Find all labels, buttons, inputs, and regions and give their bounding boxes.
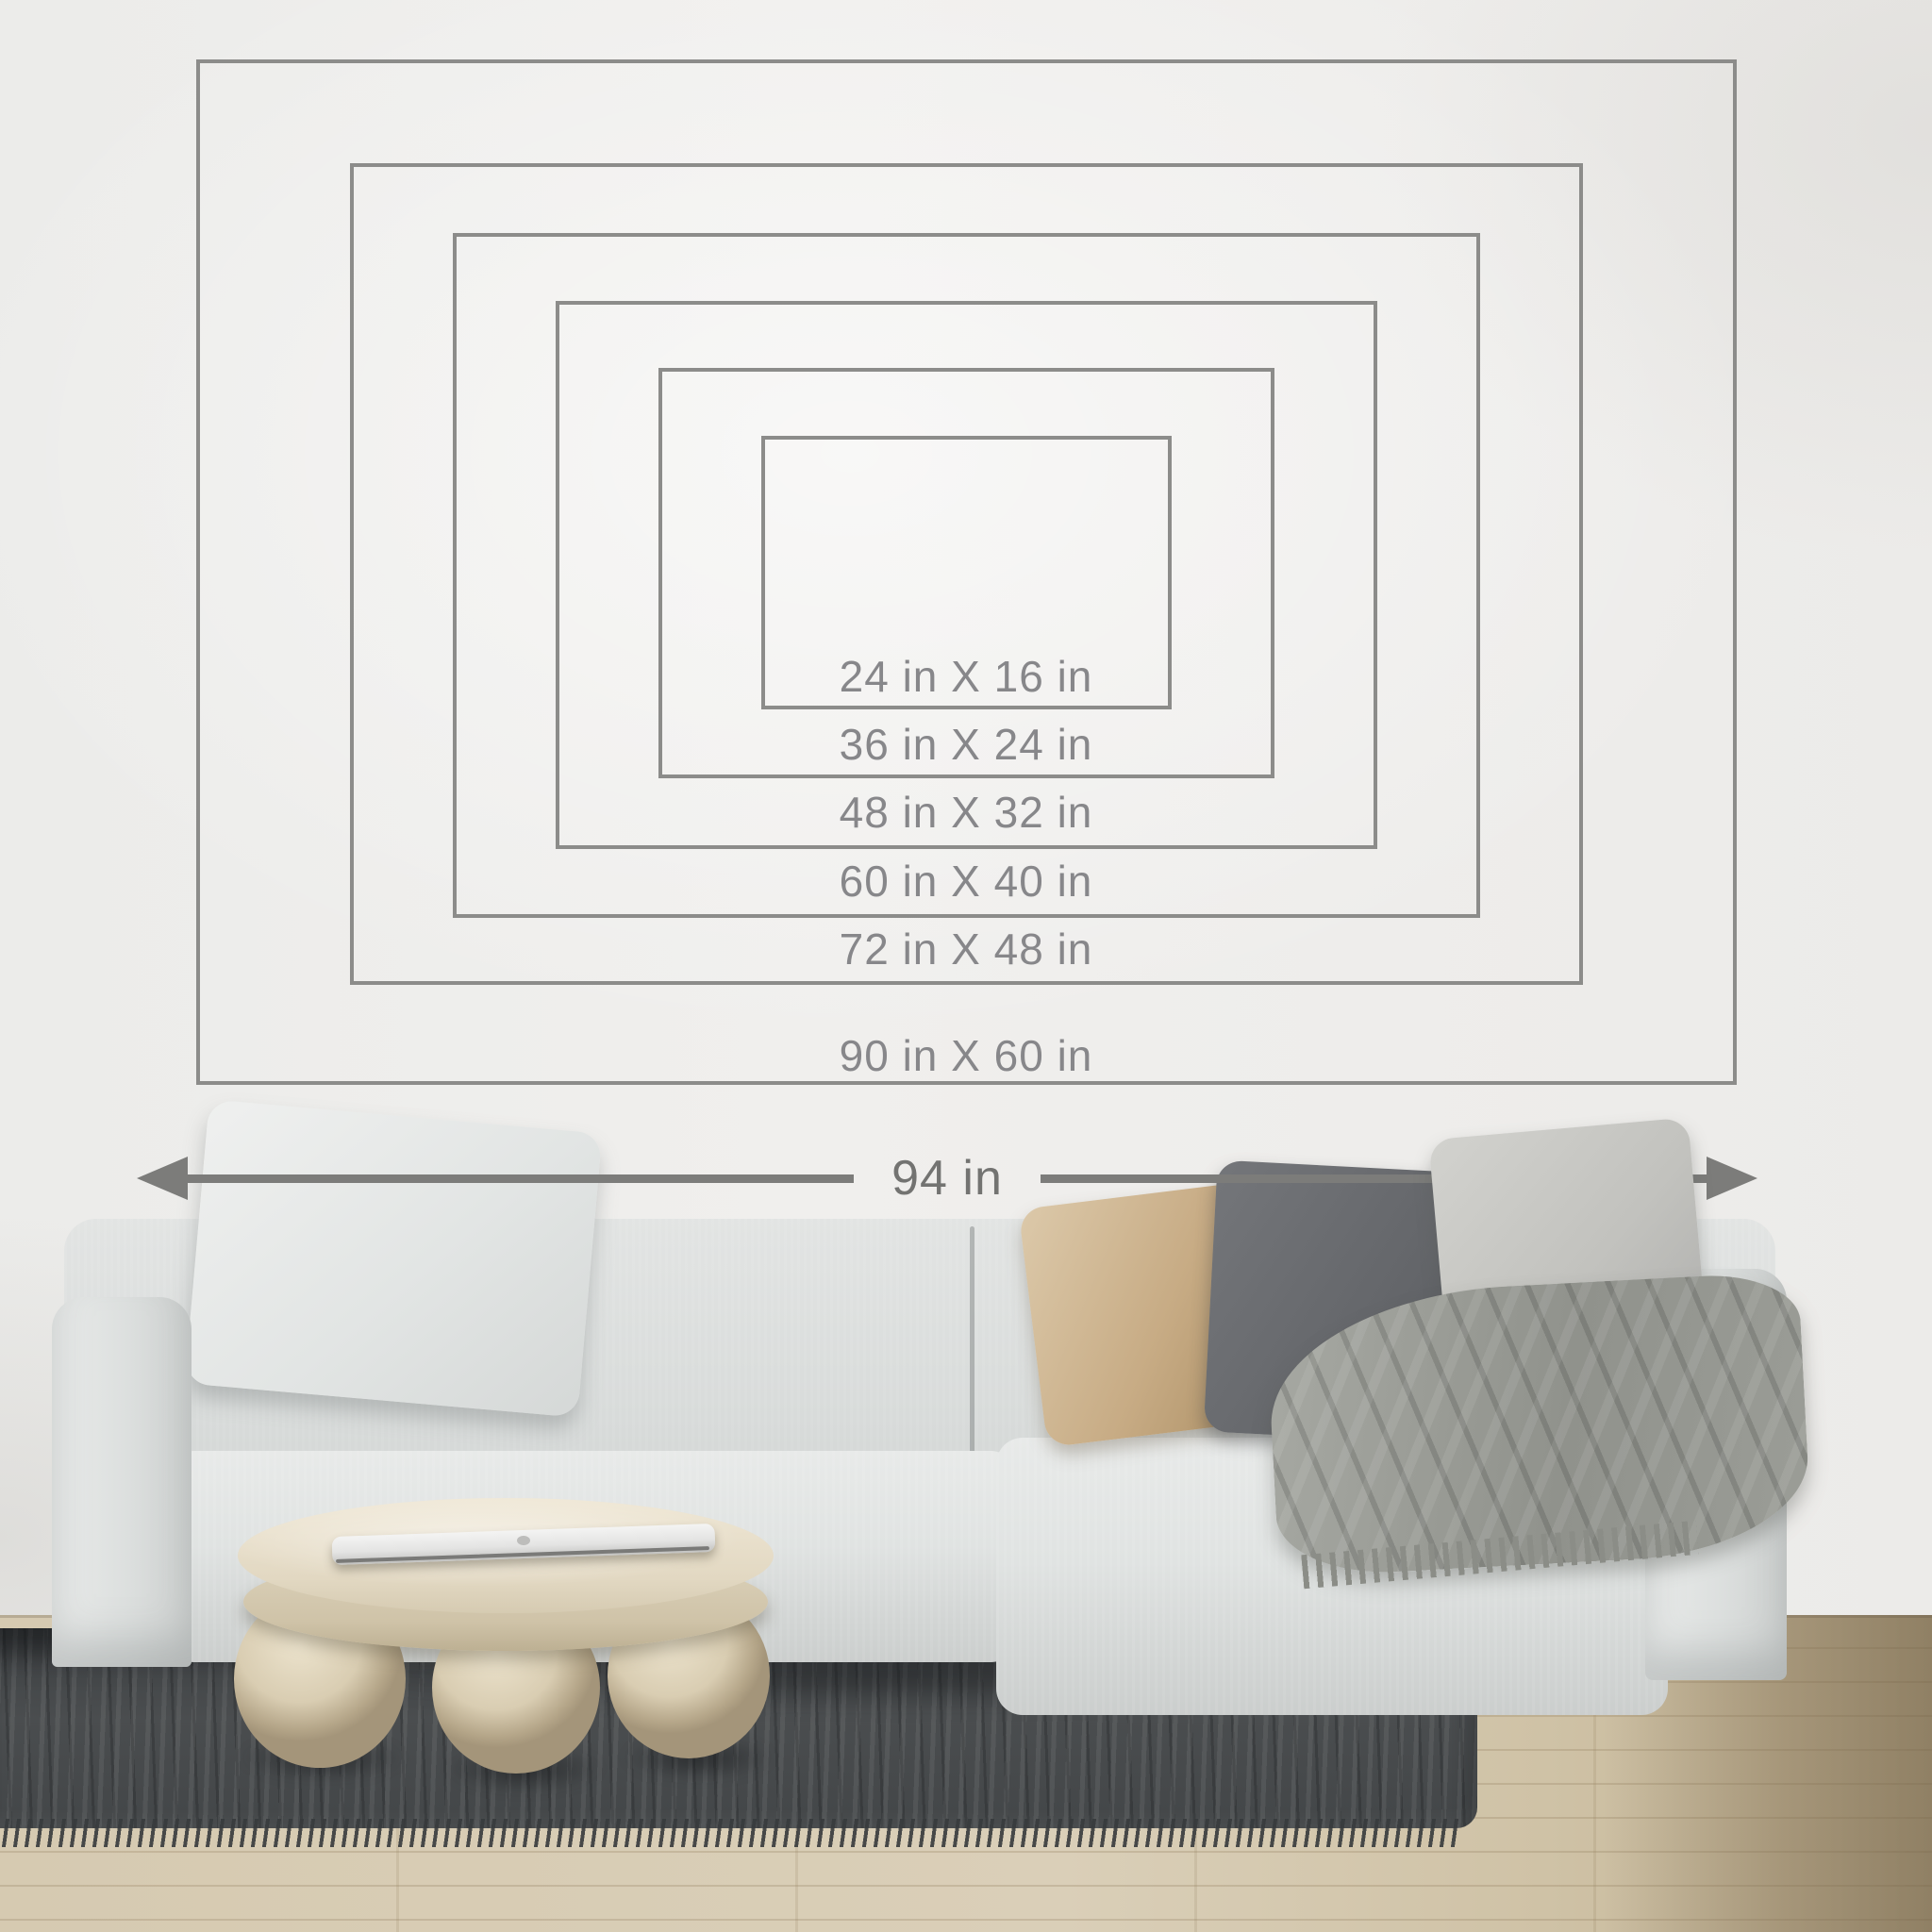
size-label-60x40: 60 in X 40 in bbox=[702, 853, 1230, 909]
size-label-36x24: 36 in X 24 in bbox=[702, 716, 1230, 773]
pillow-white bbox=[185, 1099, 603, 1417]
size-label-90x60: 90 in X 60 in bbox=[702, 1027, 1230, 1084]
wall-width-label: 94 in bbox=[854, 1150, 1041, 1207]
sofa-arm-left bbox=[52, 1297, 192, 1667]
size-label-48x32: 48 in X 32 in bbox=[702, 784, 1230, 841]
arrowhead-left-icon bbox=[137, 1157, 188, 1200]
size-label-24x16: 24 in X 16 in bbox=[702, 648, 1230, 705]
size-guide-mockup: 24 in X 16 in 36 in X 24 in 48 in X 32 i… bbox=[0, 0, 1932, 1932]
size-label-72x48: 72 in X 48 in bbox=[702, 921, 1230, 977]
rug-fringe bbox=[0, 1819, 1464, 1847]
arrow-line-left bbox=[188, 1174, 854, 1183]
laptop-logo-icon bbox=[517, 1536, 530, 1545]
arrowhead-right-icon bbox=[1707, 1157, 1757, 1200]
